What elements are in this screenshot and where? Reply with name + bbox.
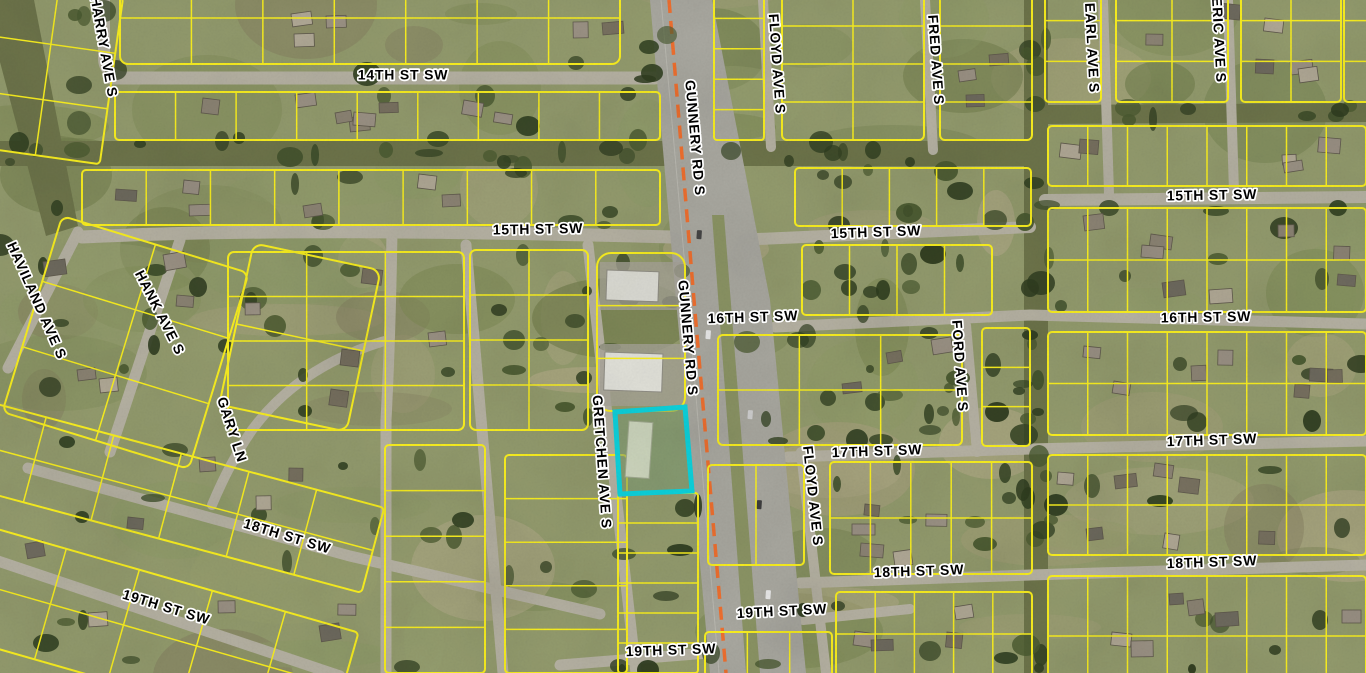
street-label: 14TH ST SW — [358, 67, 448, 83]
map-viewport[interactable]: HARRY AVE S14TH ST SWGUNNERY RD SFLOYD A… — [0, 0, 1366, 673]
street-label: 15TH ST SW — [493, 220, 584, 238]
street-label: 17TH ST SW — [831, 441, 922, 460]
street-label: 15TH ST SW — [830, 222, 921, 241]
street-label: 16TH ST SW — [1161, 308, 1252, 326]
street-label: 15TH ST SW — [1167, 186, 1258, 204]
street-label: 18TH ST SW — [873, 561, 964, 580]
aerial-parcel-map[interactable]: HARRY AVE S14TH ST SWGUNNERY RD SFLOYD A… — [0, 0, 1366, 673]
street-label: 19TH ST SW — [625, 640, 716, 659]
street-label: 18TH ST SW — [1166, 552, 1257, 571]
street-label: 17TH ST SW — [1166, 430, 1257, 449]
street-label: 16TH ST SW — [707, 307, 798, 326]
